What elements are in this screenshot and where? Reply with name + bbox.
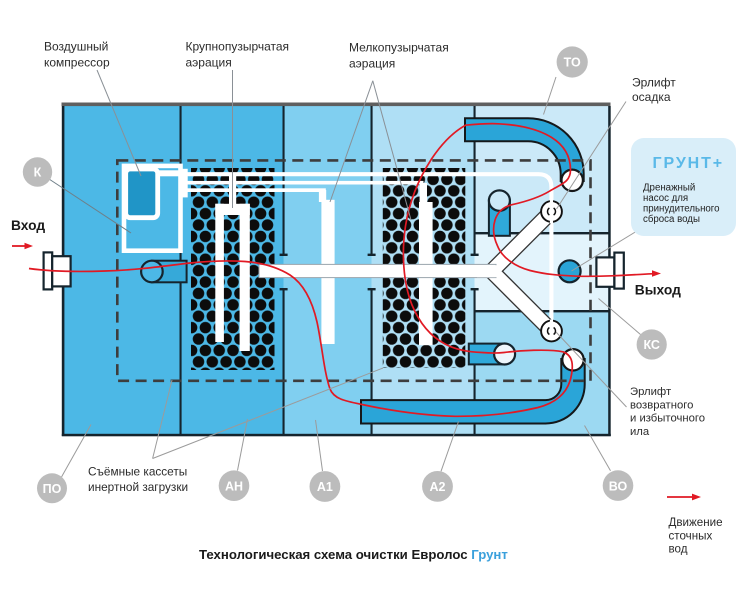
svg-text:Воздушный: Воздушный [44, 40, 108, 54]
svg-text:и избыточного: и избыточного [630, 413, 705, 425]
svg-text:аэрация: аэрация [186, 56, 232, 70]
svg-text:А2: А2 [430, 480, 446, 494]
svg-text:вод: вод [669, 543, 688, 556]
svg-text:ПО: ПО [43, 482, 62, 496]
svg-text:принудительного: принудительного [643, 204, 720, 215]
svg-text:Выход: Выход [635, 282, 681, 297]
svg-text:насос для: насос для [643, 193, 688, 204]
svg-text:ила: ила [630, 426, 650, 438]
svg-text:Вход: Вход [11, 218, 45, 233]
svg-text:инертной загрузки: инертной загрузки [88, 480, 188, 494]
svg-text:Эрлифт: Эрлифт [630, 386, 671, 398]
svg-text:сброса воды: сброса воды [643, 214, 700, 225]
svg-text:Эрлифт: Эрлифт [632, 76, 676, 90]
svg-text:возвратного: возвратного [630, 399, 693, 411]
svg-text:АН: АН [225, 479, 243, 493]
svg-text:Движение: Движение [669, 516, 723, 529]
svg-text:К: К [34, 166, 42, 180]
svg-text:Съёмные кассеты: Съёмные кассеты [88, 465, 187, 479]
svg-text:А1: А1 [317, 480, 333, 494]
svg-text:аэрация: аэрация [349, 57, 395, 71]
svg-text:ВО: ВО [609, 479, 628, 493]
svg-text:КС: КС [643, 338, 660, 352]
svg-text:ГРУНТ+: ГРУНТ+ [653, 155, 725, 172]
svg-text:Технологическая схема очистки: Технологическая схема очистки Евролос Гр… [199, 547, 508, 562]
svg-text:Крупнопузырчатая: Крупнопузырчатая [186, 40, 290, 54]
svg-text:осадка: осадка [632, 90, 671, 104]
svg-text:Дренажный: Дренажный [643, 183, 695, 194]
svg-text:компрессор: компрессор [44, 56, 110, 70]
svg-text:Мелкопузырчатая: Мелкопузырчатая [349, 41, 449, 55]
svg-text:сточных: сточных [669, 529, 713, 542]
svg-text:ТО: ТО [564, 56, 581, 70]
